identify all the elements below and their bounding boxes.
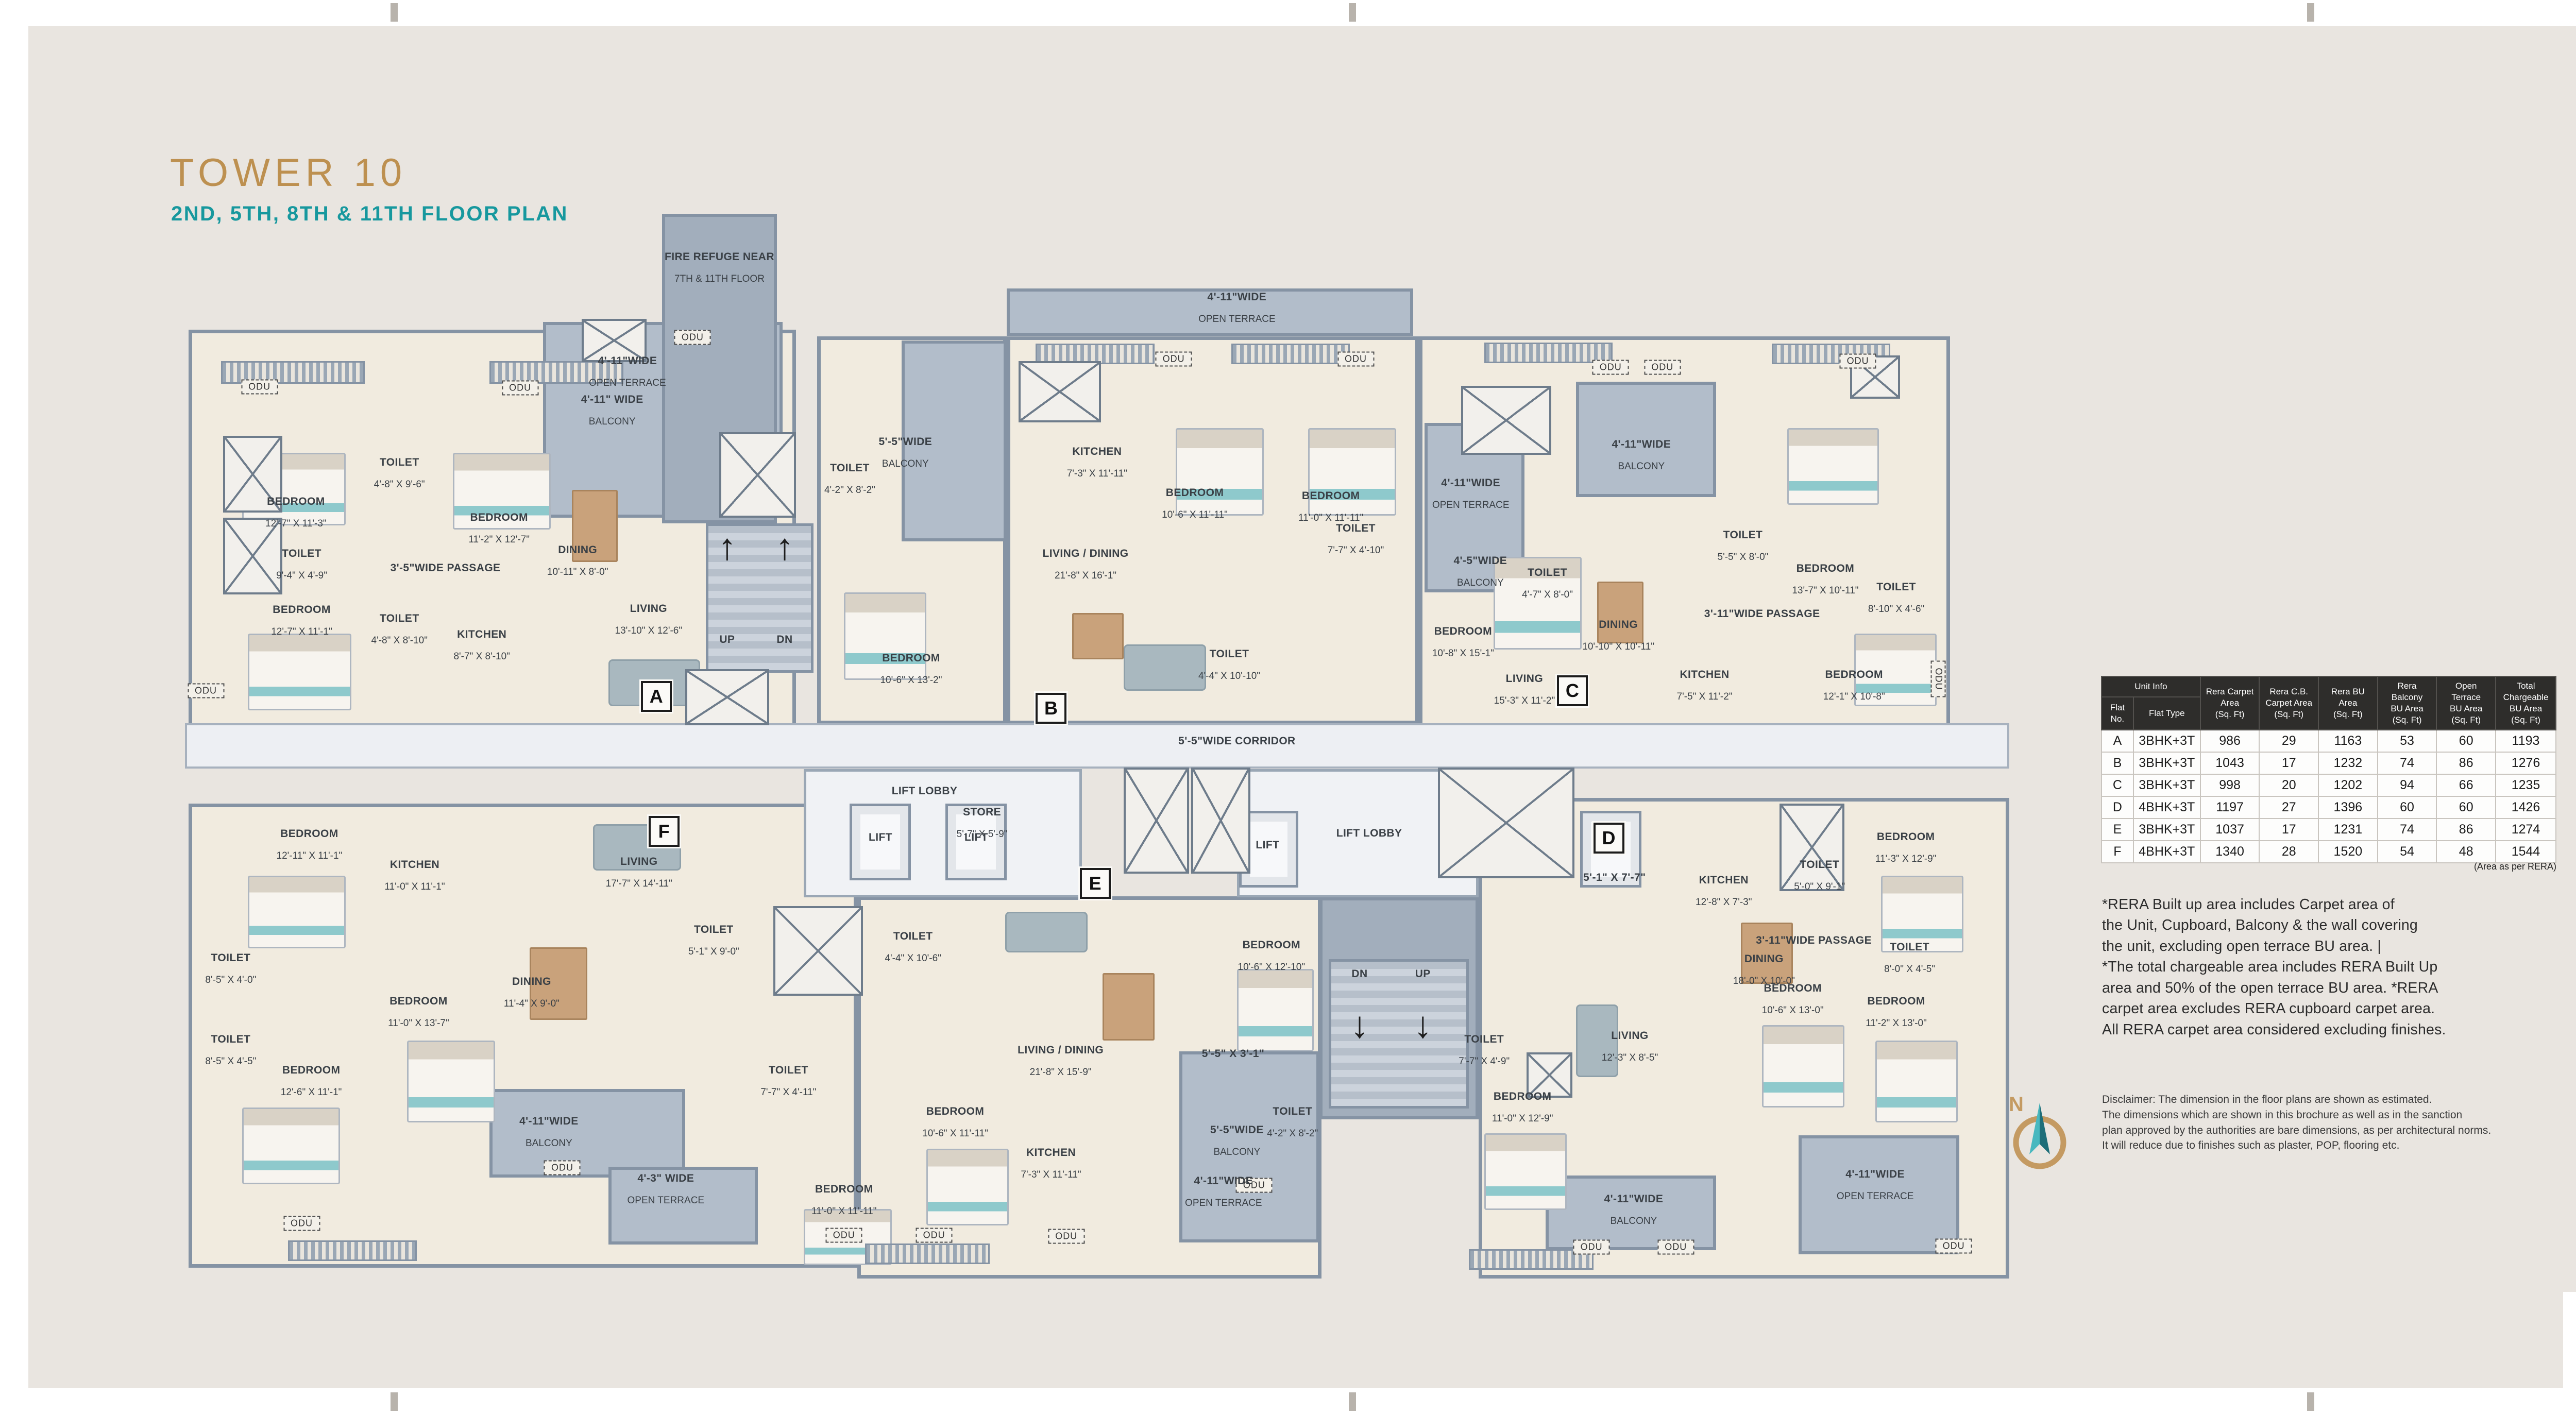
shaft-cross-box (773, 906, 863, 996)
room-label: BEDROOM 10'-6" X 12'-10" (1238, 930, 1306, 982)
shaft-cross-box (1124, 768, 1189, 874)
room-label: KITCHEN 12'-8" X 7'-3" (1696, 865, 1752, 917)
room-label: 4'-11" WIDE BALCONY (581, 384, 643, 437)
room-label: UP (1415, 959, 1431, 999)
crop-mark (2307, 1392, 2314, 1411)
cell-carpet-area: 986 (2200, 730, 2260, 752)
cell-balcony-area: 54 (2378, 841, 2437, 863)
room-label: BEDROOM 11'-0" X 11'-11" (811, 1174, 876, 1226)
room-label: KITCHEN 8'-7" X 8'-10" (453, 619, 510, 672)
room-label: TOILET 5'-1" X 9'-0" (688, 914, 739, 967)
room-label: 4'-11"WIDE BALCONY (1612, 429, 1671, 482)
room-label: DN (1351, 959, 1367, 999)
col-header-flat-type: Flat Type (2133, 697, 2200, 730)
plan-zone (185, 723, 2009, 769)
disclaimer: Disclaimer: The dimension in the floor p… (2102, 1092, 2576, 1153)
unit-marker: B (1036, 693, 1066, 724)
furniture-item (1484, 1133, 1567, 1210)
compass-n-label: N (2009, 1094, 2024, 1116)
cell-total-area: 1193 (2496, 730, 2556, 752)
room-label: 4'-3" WIDE OPEN TERRACE (628, 1163, 705, 1216)
page-subtitle: 2ND, 5TH, 8TH & 11TH FLOOR PLAN (171, 202, 568, 226)
room-label: TOILET 8'-5" X 4'-0" (205, 943, 256, 995)
odu-label: ODU (826, 1228, 862, 1242)
room-label: TOILET 4'-8" X 9'-6" (374, 447, 425, 500)
odu-label: ODU (241, 380, 278, 395)
room-label: 5'-5"WIDE BALCONY (878, 427, 932, 479)
room-label: TOILET 4'-4" X 10'-10" (1198, 639, 1260, 691)
col-header-flat-no: Flat No. (2102, 697, 2133, 730)
crop-mark (391, 1392, 398, 1411)
col-header-balcony: Rera Balcony BU Area (Sq. Ft) (2378, 676, 2437, 730)
col-header-bu: Rera BU Area (Sq. Ft) (2318, 676, 2378, 730)
room-label: TOILET 8'-0" X 4'-5" (1884, 932, 1935, 984)
furniture-item (1231, 344, 1350, 364)
room-label: TOILET 8'-10" X 4'-6" (1868, 572, 1924, 624)
room-label: 3'-5"WIDE PASSAGE (391, 553, 501, 593)
room-label: BEDROOM 11'-2" X 12'-7" (468, 502, 530, 555)
furniture-item (865, 1243, 990, 1264)
odu-label: ODU (1657, 1239, 1694, 1254)
table-row: E 3BHK+3T 1037 17 1231 74 86 1274 (2102, 819, 2556, 841)
cell-flat-type: 3BHK+3T (2133, 752, 2200, 774)
odu-label: ODU (544, 1161, 581, 1176)
cell-terrace-area: 86 (2436, 752, 2496, 774)
room-label: KITCHEN 7'-5" X 11'-2" (1677, 659, 1733, 712)
room-label: BEDROOM 12'-7" X 11'-1" (271, 594, 332, 647)
cell-balcony-area: 53 (2378, 730, 2437, 752)
odu-label: ODU (1931, 661, 1946, 697)
shaft-cross-box (1191, 768, 1250, 874)
cell-bu-area: 1163 (2318, 730, 2378, 752)
cell-flat-no: F (2102, 841, 2133, 863)
room-label: LIVING 12'-3" X 8'-5" (1602, 1020, 1658, 1073)
furniture-item (1762, 1025, 1844, 1108)
room-label: KITCHEN 7'-3" X 11'-11" (1067, 436, 1127, 489)
room-label: BEDROOM 12'-7" X 11'-3" (265, 486, 327, 539)
cell-bu-area: 1520 (2318, 841, 2378, 863)
odu-label: ODU (916, 1228, 953, 1242)
unit-marker: D (1594, 823, 1624, 854)
odu-label: ODU (502, 381, 538, 396)
shaft-cross-box (719, 432, 796, 518)
room-label: KITCHEN 11'-0" X 11'-1" (384, 849, 445, 902)
rera-note: *RERA Built up area includes Carpet area… (2102, 894, 2576, 1040)
stair-arrow-icon: ↓ (1350, 1004, 1369, 1046)
cell-total-area: 1274 (2496, 819, 2556, 841)
furniture-item (407, 1041, 495, 1123)
shaft-cross-box (1019, 361, 1101, 423)
odu-label: ODU (1337, 351, 1374, 366)
furniture-item (1787, 428, 1879, 505)
cell-flat-no: E (2102, 819, 2133, 841)
room-label: LIVING 15'-3" X 11'-2" (1494, 663, 1555, 716)
odu-label: ODU (1936, 1238, 1972, 1253)
furniture-item (242, 1108, 340, 1184)
room-label: BEDROOM 11'-2" X 13'-0" (1866, 986, 1927, 1038)
room-label: TOILET 7'-7" X 4'-11" (760, 1055, 816, 1108)
table-row: B 3BHK+3T 1043 17 1232 74 86 1276 (2102, 752, 2556, 774)
crop-mark (1349, 3, 1356, 22)
room-label: 4'-11"WIDE OPEN TERRACE (1432, 468, 1510, 520)
cell-total-area: 1426 (2496, 796, 2556, 819)
room-label: TOILET 4'-7" X 8'-0" (1522, 557, 1573, 610)
room-label: 5'-5"WIDE BALCONY (1210, 1115, 1264, 1167)
cell-balcony-area: 74 (2378, 819, 2437, 841)
room-label: TOILET 5'-5" X 8'-0" (1718, 520, 1769, 572)
compass-icon: N (1999, 1094, 2077, 1179)
room-label: LIVING 17'-7" X 14'-11" (606, 846, 672, 899)
room-label: TOILET 9'-4" X 4'-9" (276, 538, 327, 591)
odu-label: ODU (283, 1216, 320, 1231)
room-label: DINING 10'-11" X 8'-0" (547, 535, 608, 587)
furniture-item (1875, 1041, 1958, 1123)
brochure-page: { "header": { "title": "TOWER 10", "subt… (0, 0, 2576, 1414)
cell-balcony-area: 94 (2378, 774, 2437, 796)
crop-mark (391, 3, 398, 22)
unit-marker: A (641, 681, 672, 712)
logo-area (2563, 1292, 2576, 1414)
room-label: LIVING / DINING 21'-8" X 16'-1" (1042, 538, 1128, 591)
room-label: 4'-11"WIDE OPEN TERRACE (1185, 1166, 1262, 1218)
unit-info-table: Unit Info Rera Carpet Area (Sq. Ft) Rera… (2101, 676, 2556, 863)
cell-carpet-area: 1037 (2200, 819, 2260, 841)
col-header-terrace: Open Terrace BU Area (Sq. Ft) (2436, 676, 2496, 730)
cell-terrace-area: 60 (2436, 730, 2496, 752)
table-row: D 4BHK+3T 1197 27 1396 60 60 1426 (2102, 796, 2556, 819)
cell-flat-type: 3BHK+3T (2133, 774, 2200, 796)
floor-plan: ODUODUODUODUODUODUODUODUODUODUODUODUODUO… (175, 201, 2092, 1283)
table-row: F 4BHK+3T 1340 28 1520 54 48 1544 (2102, 841, 2556, 863)
cell-flat-no: C (2102, 774, 2133, 796)
page-title: TOWER 10 (170, 150, 568, 195)
furniture-item (1103, 973, 1154, 1040)
furniture-item (1005, 912, 1088, 953)
furniture-item (288, 1240, 416, 1261)
stair-arrow-icon: ↑ (718, 526, 736, 568)
cell-bu-area: 1396 (2318, 796, 2378, 819)
odu-label: ODU (674, 330, 711, 345)
room-label: LIFT LOBBY (1336, 818, 1402, 858)
room-label: FIRE REFUGE NEAR 7TH & 11TH FLOOR (665, 242, 774, 294)
unit-marker: C (1557, 675, 1588, 706)
cell-cb-area: 29 (2259, 730, 2318, 752)
stair-arrow-icon: ↓ (1414, 1004, 1432, 1046)
cell-flat-type: 3BHK+3T (2133, 730, 2200, 752)
room-label: 4'-11"WIDE OPEN TERRACE (1837, 1159, 1914, 1212)
room-label: DINING 10'-10" X 10'-11" (1582, 609, 1654, 662)
room-label: UP (719, 624, 735, 665)
room-label: BEDROOM 10'-6" X 11'-11" (1162, 478, 1228, 530)
cell-carpet-area: 1043 (2200, 752, 2260, 774)
room-label: BEDROOM 10'-6" X 13'-0" (1762, 973, 1824, 1026)
room-label: 3'-11"WIDE PASSAGE (1704, 599, 1820, 639)
col-header-carpet: Rera Carpet Area (Sq. Ft) (2200, 676, 2260, 730)
cell-terrace-area: 66 (2436, 774, 2496, 796)
room-label: TOILET 8'-5" X 4'-5" (205, 1024, 256, 1077)
cell-balcony-area: 60 (2378, 796, 2437, 819)
cell-total-area: 1276 (2496, 752, 2556, 774)
cell-flat-no: D (2102, 796, 2133, 819)
cell-terrace-area: 86 (2436, 819, 2496, 841)
cell-flat-no: A (2102, 730, 2133, 752)
room-label: TOILET 5'-0" X 9'-1" (1794, 849, 1845, 902)
room-label: BEDROOM 12'-11" X 11'-1" (277, 819, 343, 871)
room-label: DINING 11'-4" X 9'-0" (504, 966, 560, 1019)
cell-flat-type: 4BHK+3T (2133, 796, 2200, 819)
room-label: TOILET 4'-2" X 8'-2" (824, 453, 875, 505)
room-label: TOILET 4'-2" X 8'-2" (1267, 1096, 1318, 1149)
room-label: LIFT (1256, 830, 1279, 870)
room-label: 5'-1" X 7'-7" (1583, 862, 1646, 902)
cell-cb-area: 27 (2259, 796, 2318, 819)
furniture-item (1124, 644, 1206, 691)
cell-total-area: 1544 (2496, 841, 2556, 863)
furniture-item (248, 876, 346, 948)
furniture-item (1072, 613, 1124, 659)
room-label: BEDROOM 11'-0" X 13'-7" (388, 986, 449, 1038)
crop-mark (1349, 1392, 1356, 1411)
odu-label: ODU (188, 684, 224, 699)
unit-marker: E (1080, 868, 1111, 899)
room-label: 4'-5"WIDE BALCONY (1453, 546, 1507, 598)
cell-cb-area: 20 (2259, 774, 2318, 796)
cell-flat-no: B (2102, 752, 2133, 774)
header: TOWER 10 2ND, 5TH, 8TH & 11TH FLOOR PLAN (170, 150, 568, 226)
room-label: LIVING / DINING 21'-8" X 15'-9" (1018, 1035, 1104, 1087)
room-label: 4'-11"WIDE BALCONY (1604, 1184, 1664, 1236)
cell-cb-area: 28 (2259, 841, 2318, 863)
col-header-cb: Rera C.B. Carpet Area (Sq. Ft) (2259, 676, 2318, 730)
furniture-item (926, 1149, 1009, 1225)
cell-flat-type: 3BHK+3T (2133, 819, 2200, 841)
room-label: TOILET 4'-8" X 8'-10" (371, 603, 428, 656)
room-label: 3'-11"WIDE PASSAGE (1756, 925, 1872, 965)
cell-terrace-area: 48 (2436, 841, 2496, 863)
room-label: BEDROOM 12'-1" X 10'-8" (1823, 659, 1885, 712)
cell-bu-area: 1231 (2318, 819, 2378, 841)
room-label: 4'-11"WIDE OPEN TERRACE (1198, 282, 1276, 334)
room-label: TOILET 7'-7" X 4'-9" (1459, 1024, 1510, 1077)
area-note: (Area as per RERA) (2101, 861, 2556, 872)
col-header-unit-info: Unit Info (2102, 676, 2200, 697)
odu-label: ODU (1644, 360, 1681, 375)
cell-carpet-area: 1340 (2200, 841, 2260, 863)
cell-balcony-area: 74 (2378, 752, 2437, 774)
cell-carpet-area: 998 (2200, 774, 2260, 796)
room-label: 4'-11"WIDE BALCONY (519, 1106, 579, 1159)
stair-arrow-icon: ↑ (775, 526, 794, 568)
room-label: LIFT LOBBY (892, 776, 958, 816)
room-label: KITCHEN 7'-3" X 11'-11" (1021, 1137, 1081, 1190)
room-label: BEDROOM 10'-8" X 15'-1" (1432, 616, 1494, 669)
room-label: 5'-5"WIDE CORRIDOR (1178, 726, 1296, 766)
shaft-cross-box (685, 669, 770, 725)
room-label: BEDROOM 10'-6" X 11'-11" (922, 1096, 988, 1149)
cell-flat-type: 4BHK+3T (2133, 841, 2200, 863)
room-label: BEDROOM 12'-6" X 11'-1" (281, 1055, 342, 1108)
cell-total-area: 1235 (2496, 774, 2556, 796)
odu-label: ODU (1048, 1229, 1084, 1243)
cell-terrace-area: 60 (2436, 796, 2496, 819)
room-label: LIVING 13'-10" X 12'-6" (615, 593, 683, 646)
cell-carpet-area: 1197 (2200, 796, 2260, 819)
crop-mark (2307, 3, 2314, 22)
room-label: TOILET 7'-7" X 4'-10" (1328, 513, 1384, 566)
odu-label: ODU (1840, 353, 1876, 368)
cell-bu-area: 1202 (2318, 774, 2378, 796)
unit-info-rows: A 3BHK+3T 986 29 1163 53 60 1193 B 3BHK+… (2102, 730, 2556, 863)
col-header-total: Total Chargeable BU Area (Sq. Ft) (2496, 676, 2556, 730)
odu-label: ODU (1573, 1239, 1610, 1254)
room-label: DN (776, 624, 792, 665)
table-row: C 3BHK+3T 998 20 1202 94 66 1235 (2102, 774, 2556, 796)
room-label: STORE 5'-7" X 5'-9" (957, 797, 1008, 849)
room-label: BEDROOM 11'-3" X 12'-9" (1875, 822, 1937, 874)
cell-bu-area: 1232 (2318, 752, 2378, 774)
odu-label: ODU (1156, 351, 1192, 366)
shaft-cross-box (1461, 386, 1551, 455)
table-row: A 3BHK+3T 986 29 1163 53 60 1193 (2102, 730, 2556, 752)
room-label: TOILET 4'-4" X 10'-6" (885, 921, 941, 974)
room-label: 5'-5" X 3'-1" (1202, 1038, 1264, 1079)
room-label: BEDROOM 11'-0" X 12'-9" (1492, 1081, 1553, 1134)
room-label: LIFT (869, 822, 892, 862)
odu-label: ODU (1592, 360, 1629, 375)
room-label: BEDROOM 10'-6" X 13'-2" (880, 643, 942, 695)
cell-cb-area: 17 (2259, 819, 2318, 841)
shaft-cross-box (1438, 768, 1574, 878)
unit-marker: F (649, 816, 680, 847)
cell-cb-area: 17 (2259, 752, 2318, 774)
